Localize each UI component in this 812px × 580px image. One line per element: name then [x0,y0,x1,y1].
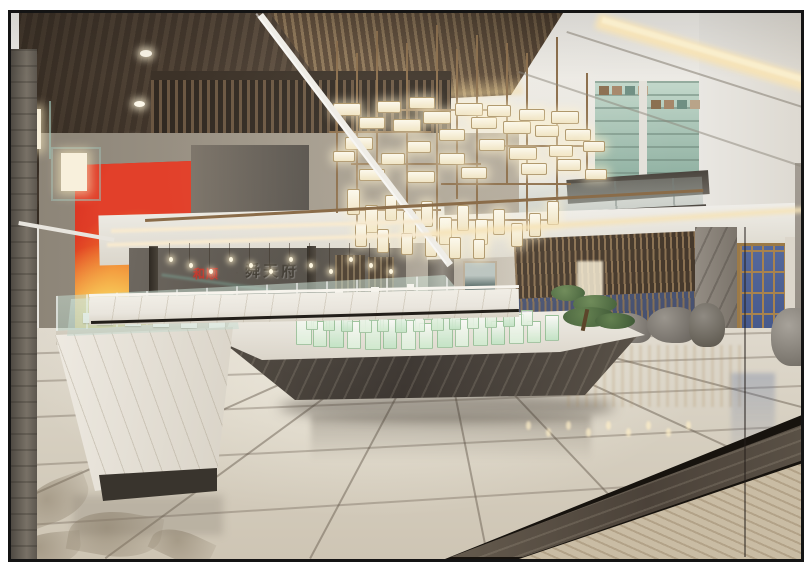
bulb-wire [309,243,310,263]
chandelier-lamp [585,169,607,180]
chandelier-lamp [521,163,547,175]
chandelier-lamp [461,167,487,179]
chandelier-lamp [509,147,537,160]
chandelier-lamp [479,139,505,151]
chandelier-rod [586,73,588,173]
photo-frame: 和顺 · 舜天府 [8,10,804,562]
chandelier-lamp [535,125,559,137]
bulb-wire [169,243,170,257]
chandelier-lamp [487,105,511,117]
bulb-wire [249,243,250,263]
chandelier-lamp [409,97,435,109]
hanging-bulb [169,257,173,262]
hanging-bulb [369,263,373,268]
chandelier-rod [336,41,338,213]
chandelier-lamp [519,109,545,121]
bulb-wire [369,243,370,263]
chandelier-lamp [407,141,431,153]
hanging-bulb [389,269,393,274]
chandelier-rod [436,25,438,245]
chandelier-lamp [377,101,401,113]
chandelier-lamp [557,159,581,171]
hanging-bulb [309,263,313,268]
chandelier-lamp [455,103,483,116]
chandelier-rod [526,53,528,231]
chandelier-lamp [457,205,469,231]
hanging-bulb [349,257,353,262]
chandelier-lamp [473,239,485,259]
chandelier-lamp [423,111,451,124]
chandelier-lamp [359,117,385,129]
chandelier-lamp [347,189,360,215]
chandelier-rod [456,49,458,199]
left-pillar [11,49,37,559]
chandelier [11,13,801,559]
chandelier-lamp [583,141,605,152]
bulb-wire [289,243,290,257]
hanging-bulb [269,269,273,274]
bulb-wire [329,243,330,269]
glass-partition-edge [744,227,746,557]
hanging-bulb [249,263,253,268]
chandelier-lamp [333,151,355,162]
chandelier-lamp [407,171,435,183]
chandelier-rod [376,31,378,163]
chandelier-arm [441,183,571,185]
chandelier-lamp [549,145,573,157]
chandelier-lamp [439,153,465,165]
chandelier-lamp [439,129,465,141]
chandelier-lamp [565,129,591,141]
bulb-wire [389,243,390,269]
hanging-bulb [229,257,233,262]
chandelier-lamp [381,153,405,165]
hanging-bulb [329,269,333,274]
chandelier-lamp [547,201,559,225]
chandelier-lamp [377,229,389,253]
bulb-wire [269,243,270,269]
chandelier-rod [476,35,478,227]
bulb-wire [189,243,190,263]
hanging-bulb [189,263,193,268]
lobby-photo: 和顺 · 舜天府 [11,13,801,559]
chandelier-lamp [471,117,497,129]
hanging-bulb [209,269,213,274]
bulb-wire [349,243,350,257]
chandelier-lamp [503,121,531,134]
chandelier-lamp [393,119,421,132]
bulb-wire [209,243,210,269]
chandelier-lamp [551,111,579,124]
chandelier-lamp [449,237,461,259]
bulb-wire [229,243,230,257]
hanging-bulb [289,257,293,262]
